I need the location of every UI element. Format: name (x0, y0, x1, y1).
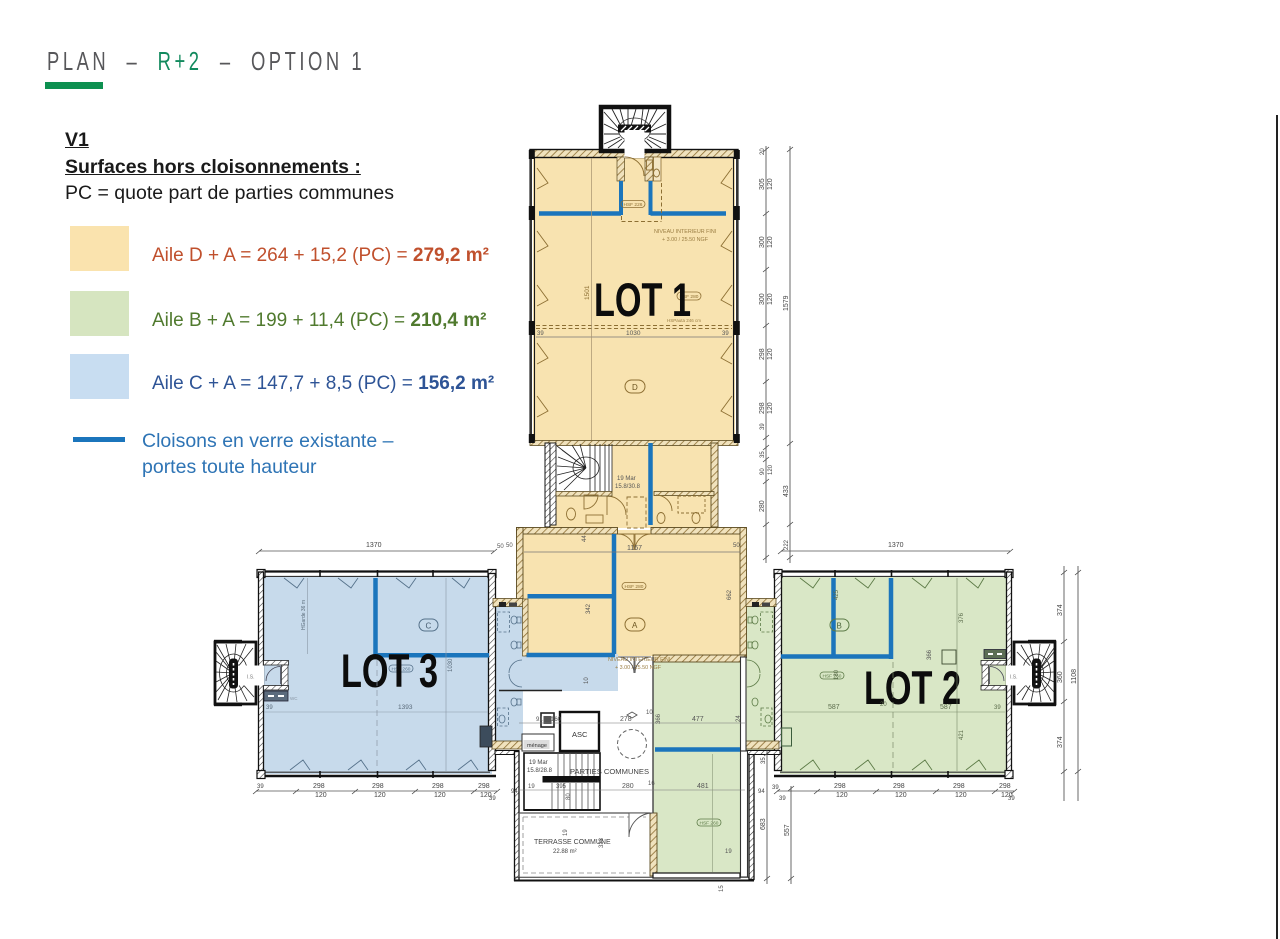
svg-text:425: 425 (834, 589, 840, 600)
svg-text:1370: 1370 (366, 542, 382, 549)
svg-text:NIVEAU INTERIEUR FINI: NIVEAU INTERIEUR FINI (654, 229, 716, 235)
svg-text:39: 39 (537, 331, 544, 337)
svg-text:HGarde 36 m: HGarde 36 m (301, 600, 307, 630)
svg-text:477: 477 (692, 716, 704, 723)
svg-text:+ 3.00 / 25.50 NGF: + 3.00 / 25.50 NGF (615, 665, 662, 671)
svg-text:300: 300 (759, 236, 766, 248)
svg-text:B: B (837, 622, 842, 631)
svg-text:160: 160 (551, 717, 562, 723)
svg-text:298: 298 (759, 402, 766, 414)
svg-text:44: 44 (582, 535, 588, 542)
svg-text:24: 24 (736, 715, 742, 722)
svg-text:39: 39 (772, 785, 779, 791)
svg-text:39: 39 (489, 796, 496, 802)
svg-text:298: 298 (893, 783, 905, 790)
svg-text:280: 280 (622, 783, 634, 790)
svg-text:15: 15 (719, 885, 725, 892)
svg-text:298: 298 (759, 348, 766, 360)
svg-text:120: 120 (767, 348, 774, 360)
svg-text:I.S.: I.S. (247, 675, 255, 681)
svg-text:1030: 1030 (448, 658, 454, 672)
svg-text:50: 50 (733, 543, 740, 549)
svg-text:298: 298 (953, 783, 965, 790)
svg-text:587: 587 (940, 704, 952, 711)
svg-text:298: 298 (478, 783, 490, 790)
svg-text:120: 120 (955, 792, 967, 799)
svg-text:ménage: ménage (527, 743, 547, 749)
svg-text:1501: 1501 (584, 285, 591, 300)
svg-text:120: 120 (374, 792, 386, 799)
svg-text:HSF 260: HSF 260 (700, 821, 719, 827)
svg-text:662: 662 (727, 589, 733, 600)
svg-text:A: A (632, 621, 638, 630)
svg-text:15.8/30.8: 15.8/30.8 (615, 484, 641, 490)
svg-text:1167: 1167 (627, 545, 642, 552)
svg-text:1370: 1370 (888, 542, 904, 549)
svg-text:+ 3.00 / 25.50 NGF: + 3.00 / 25.50 NGF (662, 237, 709, 243)
svg-text:16: 16 (648, 781, 655, 787)
svg-text:120: 120 (767, 402, 774, 414)
svg-text:222: 222 (784, 539, 790, 550)
svg-text:39: 39 (722, 331, 729, 337)
svg-text:HSF 280: HSF 280 (625, 584, 644, 590)
svg-text:35: 35 (761, 757, 767, 764)
svg-text:NIVEAU INTERIEUR FINI: NIVEAU INTERIEUR FINI (608, 657, 670, 663)
svg-text:39: 39 (760, 423, 766, 430)
svg-text:587: 587 (828, 704, 840, 711)
svg-text:280: 280 (759, 500, 766, 512)
svg-text:D: D (632, 383, 638, 392)
svg-text:C: C (426, 622, 432, 631)
svg-text:333: 333 (599, 837, 605, 848)
svg-text:298: 298 (432, 783, 444, 790)
svg-text:WC: WC (290, 696, 298, 701)
svg-text:120: 120 (768, 464, 774, 475)
svg-text:19 Mar: 19 Mar (617, 476, 636, 482)
svg-text:19: 19 (528, 784, 535, 790)
svg-text:22.88 m²: 22.88 m² (553, 849, 577, 855)
svg-text:1108: 1108 (1071, 669, 1078, 684)
svg-text:39: 39 (994, 705, 1001, 711)
svg-text:19 Mar: 19 Mar (529, 760, 548, 766)
svg-text:50: 50 (497, 544, 504, 550)
svg-text:1030: 1030 (626, 330, 641, 337)
svg-text:421: 421 (959, 729, 965, 740)
svg-text:LOT 1: LOT 1 (594, 273, 691, 326)
svg-text:557: 557 (784, 824, 791, 836)
svg-text:120: 120 (836, 792, 848, 799)
svg-text:1393: 1393 (398, 704, 413, 711)
svg-text:433: 433 (783, 485, 790, 497)
svg-text:120: 120 (767, 236, 774, 248)
svg-text:120: 120 (895, 792, 907, 799)
svg-text:39: 39 (1008, 796, 1015, 802)
svg-text:10: 10 (584, 677, 590, 684)
svg-text:366: 366 (656, 713, 662, 724)
svg-text:39: 39 (266, 705, 273, 711)
svg-text:1579: 1579 (783, 295, 790, 311)
svg-text:360: 360 (1057, 671, 1064, 683)
svg-text:278: 278 (620, 716, 632, 723)
svg-text:LOT 3: LOT 3 (341, 644, 438, 697)
svg-text:366: 366 (927, 649, 933, 660)
svg-text:91: 91 (536, 717, 543, 723)
svg-text:180: 180 (834, 669, 840, 680)
svg-text:374: 374 (1057, 604, 1064, 616)
svg-text:120: 120 (315, 792, 327, 799)
svg-text:305: 305 (759, 178, 766, 190)
svg-text:683: 683 (760, 818, 767, 830)
svg-text:10: 10 (646, 710, 653, 716)
svg-text:39: 39 (779, 796, 786, 802)
svg-text:120: 120 (434, 792, 446, 799)
svg-text:I.S.: I.S. (1010, 675, 1018, 681)
svg-text:298: 298 (372, 783, 384, 790)
svg-text:481: 481 (697, 783, 709, 790)
svg-text:15.8/28.8: 15.8/28.8 (527, 768, 553, 774)
svg-text:395: 395 (556, 784, 567, 790)
svg-text:376: 376 (959, 612, 965, 623)
svg-text:20: 20 (880, 702, 887, 708)
svg-text:19: 19 (725, 849, 732, 855)
svg-text:ASC: ASC (572, 730, 588, 739)
svg-text:94: 94 (511, 789, 518, 795)
svg-text:20: 20 (760, 148, 766, 155)
svg-text:50: 50 (506, 543, 513, 549)
svg-text:19: 19 (563, 829, 569, 836)
svg-text:90: 90 (760, 468, 766, 475)
svg-text:298: 298 (834, 783, 846, 790)
svg-text:298: 298 (313, 783, 325, 790)
svg-text:39: 39 (257, 784, 264, 790)
svg-text:300: 300 (759, 293, 766, 305)
svg-text:35: 35 (760, 451, 766, 458)
svg-text:80: 80 (566, 793, 572, 800)
svg-text:94: 94 (758, 789, 765, 795)
svg-text:374: 374 (1057, 736, 1064, 748)
svg-text:342: 342 (586, 603, 592, 614)
svg-text:PARTIES COMMUNES: PARTIES COMMUNES (570, 767, 649, 776)
svg-text:120: 120 (767, 178, 774, 190)
svg-text:HSF 226: HSF 226 (624, 202, 643, 208)
svg-text:298: 298 (999, 783, 1011, 790)
svg-text:120: 120 (767, 293, 774, 305)
